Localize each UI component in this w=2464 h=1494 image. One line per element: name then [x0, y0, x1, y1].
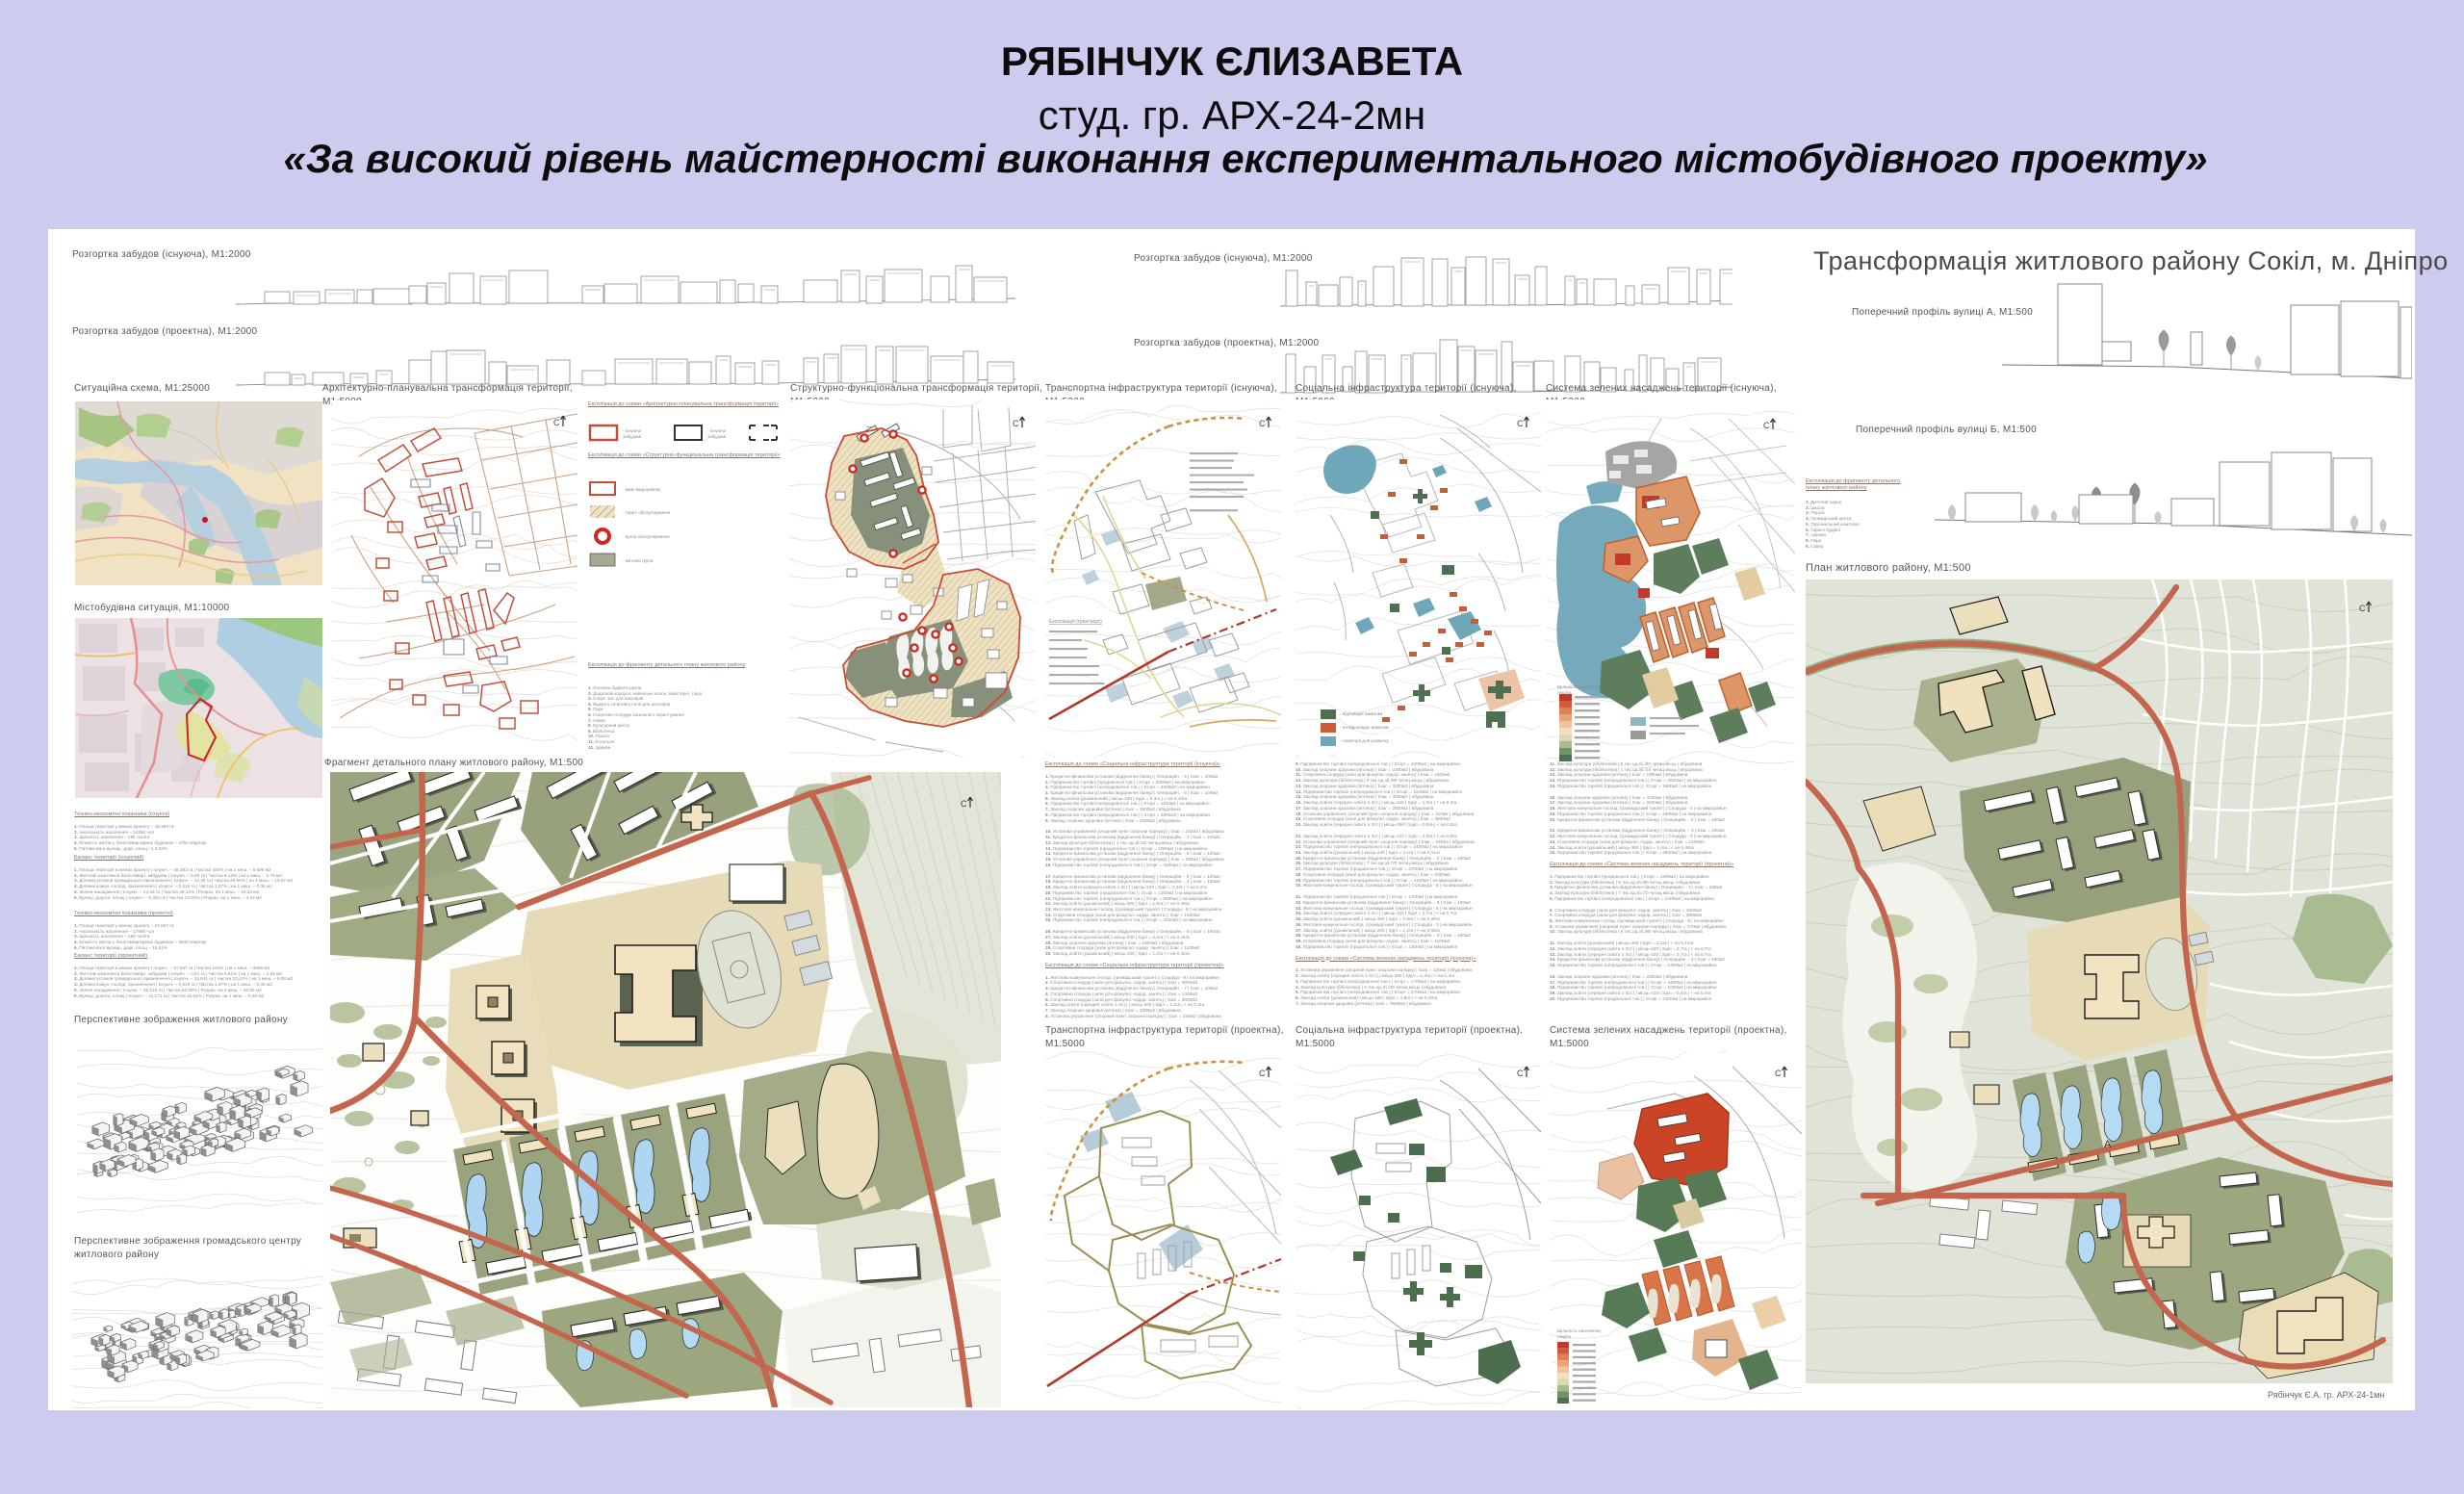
svg-text:забудова: забудова — [623, 434, 642, 439]
svg-text:- вузол обслуговування: - вузол обслуговування — [623, 534, 670, 539]
svg-text:люд/га: люд/га — [1557, 1334, 1572, 1339]
svg-text:С: С — [1763, 421, 1770, 430]
svg-text:- межі мікрорайону: - межі мікрорайону — [623, 486, 661, 492]
svg-text:- не відповідає вимогам: - не відповідає вимогам — [1340, 725, 1389, 730]
svg-text:А: А — [2104, 1139, 2112, 1150]
svg-text:Експлікація (транспорт): Експлікація (транспорт) — [1049, 619, 1102, 625]
svg-text:С: С — [1259, 419, 1266, 428]
svg-text:С: С — [553, 418, 560, 427]
svg-text:- відповідає вимогам: - відповідає вимогам — [1340, 711, 1382, 716]
svg-text:- терит. обслуговування: - терит. обслуговування — [623, 510, 671, 515]
svg-text:забудова: забудова — [707, 434, 727, 439]
svg-text:- території для розвитку: - території для розвитку — [1340, 738, 1390, 743]
svg-text:- житлові групи: - житлові групи — [623, 558, 654, 563]
svg-text:Щільність населення,: Щільність населення, — [1557, 1328, 1602, 1333]
svg-text:С: С — [1259, 1069, 1266, 1078]
svg-text:С: С — [1517, 419, 1524, 428]
svg-text:С: С — [1013, 419, 1019, 428]
svg-text:С: С — [961, 799, 967, 809]
svg-text:- існуюча: - існуюча — [623, 428, 641, 433]
svg-text:С: С — [2359, 604, 2366, 613]
svg-text:люд/га: люд/га — [1557, 690, 1572, 695]
svg-text:- існуюча: - існуюча — [707, 428, 726, 433]
svg-text:С: С — [1775, 1069, 1782, 1078]
svg-text:Щільність населення,: Щільність населення, — [1557, 684, 1602, 689]
svg-text:С: С — [1517, 1069, 1524, 1078]
